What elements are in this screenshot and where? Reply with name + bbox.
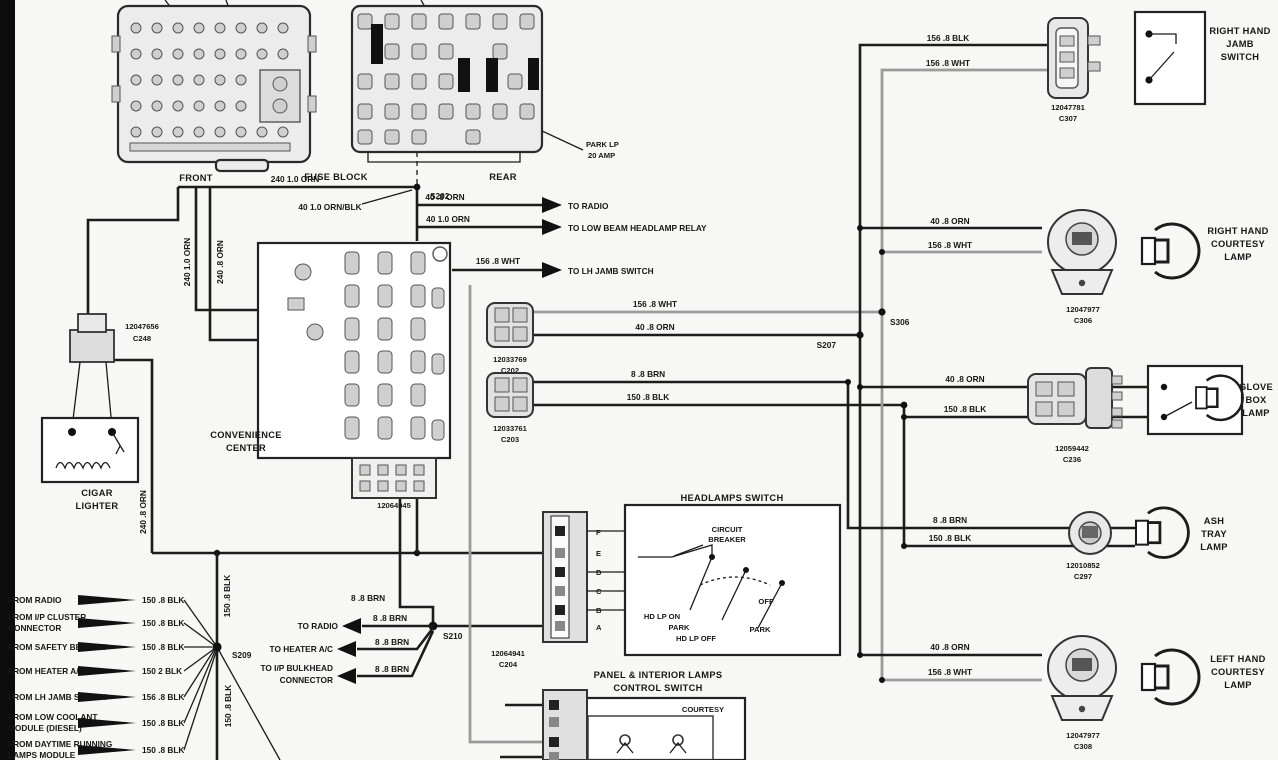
- ash-tray-lamp: 12010852 C297 ASH TRAY LAMP: [1066, 508, 1228, 581]
- wire-label: 240 1.0 ORN: [271, 174, 319, 184]
- ground-splice-area: S209 FROM RADIO 150 .8 BLK FROM I/P CLUS…: [8, 595, 280, 760]
- wire-label: 156 .8 WHT: [926, 58, 970, 68]
- from-row-wire: 150 .8 BLK: [142, 718, 184, 728]
- c297-id: C297: [1074, 572, 1092, 581]
- lamp-icon: [1142, 650, 1199, 704]
- ash-tray-label-1: ASH: [1204, 516, 1225, 526]
- off-label: OFF: [758, 597, 774, 606]
- rh-jamb-label-3: SWITCH: [1221, 52, 1259, 62]
- cigar-connector-number: 12047656: [125, 322, 159, 331]
- cigar-connector-id: C248: [133, 334, 151, 343]
- wire-label: 150 .8 BLK: [929, 533, 971, 543]
- glove-box-label-2: BOX: [1245, 395, 1267, 405]
- splice-label-s207: S207: [817, 340, 837, 350]
- feed-arrow-to-low-beam: TO LOW BEAM HEADLAMP RELAY: [568, 223, 707, 233]
- from-row-label: FROM HEATER A/C: [8, 666, 85, 676]
- pin-label-a: A: [596, 623, 602, 632]
- rh-jamb-switch: 12047781 C307 RIGHT HAND JAMB SWITCH: [1048, 12, 1271, 123]
- glove-box-lamp: 12059442 C236 GLOVE BOX LAMP: [1028, 366, 1273, 464]
- from-row-wire: 150 .8 BLK: [142, 595, 184, 605]
- wire-label: 8 .8 BRN: [351, 593, 385, 603]
- to-row-label: TO RADIO: [298, 621, 339, 631]
- lh-courtesy-lamp: 12047977 C308 LEFT HAND COURTESY LAMP: [1048, 636, 1266, 751]
- rh-courtesy-label-1: RIGHT HAND: [1207, 226, 1268, 236]
- from-row-wire: 150 .8 BLK: [142, 618, 184, 628]
- convenience-connector-number: 12064945: [377, 501, 412, 510]
- from-row-wire: 156 .8 BLK: [142, 692, 184, 702]
- ash-tray-label-3: LAMP: [1200, 542, 1228, 552]
- fuse-block-rear-view: FUSE BLOCK REAR PARK LP 20 AMP: [304, 6, 619, 182]
- courtesy-label: COURTESY: [682, 705, 724, 714]
- to-row-wire: 8 .8 BRN: [375, 664, 409, 674]
- splice-label-s306: S306: [890, 317, 910, 327]
- rh-courtesy-lamp: 12047977 C306 RIGHT HAND COURTESY LAMP: [1048, 210, 1269, 325]
- c308-number: 12047977: [1066, 731, 1100, 740]
- cigar-lighter: 12047656 C248 CIGAR LIGHTER: [42, 314, 159, 511]
- scanned-wiring-diagram: FRONT FUSE BLOCK REAR PARK LP 20 AMP: [0, 0, 1278, 760]
- c306-id: C306: [1074, 316, 1092, 325]
- hd-lp-off-label: HD LP OFF: [676, 634, 716, 643]
- wire-label: 150 .8 BLK: [627, 392, 669, 402]
- glove-box-label-3: LAMP: [1242, 408, 1270, 418]
- lh-courtesy-label-3: LAMP: [1224, 680, 1252, 690]
- wire-label: 150 .8 BLK: [944, 404, 986, 414]
- from-row-wire: 150 2 BLK: [142, 666, 182, 676]
- pin-label-f: F: [596, 528, 601, 537]
- wire-label: 40 .8 ORN: [930, 216, 969, 226]
- to-row-label: TO HEATER A/C: [270, 644, 333, 654]
- wire-label-vertical: 150 .8 BLK: [223, 685, 233, 727]
- rh-jamb-label-1: RIGHT HAND: [1209, 26, 1270, 36]
- panel-switch-title-1: PANEL & INTERIOR LAMPS: [594, 670, 723, 680]
- lamp-icon: [1136, 508, 1188, 558]
- c307-id: C307: [1059, 114, 1077, 123]
- park-fuse-label-2: 20 AMP: [588, 151, 615, 160]
- rh-courtesy-label-2: COURTESY: [1211, 239, 1266, 249]
- headlamps-switch: HEADLAMPS SWITCH F E D C B A 12064941 C2…: [491, 493, 840, 669]
- wire-label-vertical: 240 1.0 ORN: [182, 238, 192, 286]
- c203-number: 12033761: [493, 424, 528, 433]
- splice-label-s209: S209: [232, 650, 252, 660]
- c202-number: 12033769: [493, 355, 527, 364]
- from-row-label: CONNECTOR: [8, 623, 61, 633]
- splice-label-s210: S210: [443, 631, 463, 641]
- panel-interior-lamps-switch: PANEL & INTERIOR LAMPS CONTROL SWITCH CO…: [543, 670, 745, 760]
- rh-jamb-label-2: JAMB: [1226, 39, 1254, 49]
- wire-label: 156 .8 WHT: [928, 667, 972, 677]
- rh-courtesy-label-3: LAMP: [1224, 252, 1252, 262]
- park-label-2: PARK: [750, 625, 771, 634]
- c236-number: 12059442: [1055, 444, 1089, 453]
- wire-label: 40 .8 ORN: [930, 642, 969, 652]
- to-row-label: CONNECTOR: [280, 675, 333, 685]
- c204-id: C204: [499, 660, 518, 669]
- dimmer-splice-area: S210 TO RADIO 8 .8 BRN TO HEATER A/C 8 .…: [260, 613, 462, 685]
- hd-lp-on-label: HD LP ON: [644, 612, 680, 621]
- feed-arrow-to-lh-jamb: TO LH JAMB SWITCH: [568, 266, 654, 276]
- to-row-wire: 8 .8 BRN: [375, 637, 409, 647]
- c308-id: C308: [1074, 742, 1092, 751]
- connector-c202: 12033769 C202: [487, 303, 533, 375]
- from-row-wire: 150 .8 BLK: [142, 745, 184, 755]
- wire-label-vertical: 240 .8 ORN: [138, 490, 148, 534]
- wire-label: 40 .8 ORN: [635, 322, 674, 332]
- from-row-label: LAMPS MODULE: [8, 750, 76, 760]
- wire-label-vertical: 150 .8 BLK: [222, 575, 232, 617]
- wire-label: 156 .8 BLK: [927, 33, 969, 43]
- c306-number: 12047977: [1066, 305, 1100, 314]
- convenience-center-label-1: CONVENIENCE: [210, 430, 282, 440]
- c203-id: C203: [501, 435, 519, 444]
- wire-label: 156 .8 WHT: [928, 240, 972, 250]
- convenience-center: 12064945 CONVENIENCE CENTER: [210, 243, 450, 510]
- wire-label: 8 .8 BRN: [933, 515, 967, 525]
- from-row-label: FROM I/P CLUSTER: [8, 612, 86, 622]
- convenience-center-label-2: CENTER: [226, 443, 266, 453]
- circuit-breaker-label-2: BREAKER: [708, 535, 746, 544]
- to-row-wire: 8 .8 BRN: [373, 613, 407, 623]
- lh-courtesy-label-2: COURTESY: [1211, 667, 1266, 677]
- fuse-rear-label: REAR: [489, 172, 517, 182]
- wire-label: 40 1.0 ORN/BLK: [298, 202, 361, 212]
- fuse-front-label: FRONT: [179, 173, 213, 183]
- lh-courtesy-label-1: LEFT HAND: [1210, 654, 1265, 664]
- fuse-block-front-view: FRONT: [112, 6, 316, 183]
- glove-box-label-1: GLOVE: [1239, 382, 1273, 392]
- c204-number: 12064941: [491, 649, 526, 658]
- from-row-label: FROM RADIO: [8, 595, 62, 605]
- circuit-breaker-label-1: CIRCUIT: [712, 525, 743, 534]
- park-label: PARK: [669, 623, 690, 632]
- wire-label: 156 .8 WHT: [633, 299, 677, 309]
- lamp-icon: [1142, 224, 1199, 278]
- to-row-label: TO I/P BULKHEAD: [260, 663, 333, 673]
- pin-label-e: E: [596, 549, 601, 558]
- wire-label: 8 .8 BRN: [631, 369, 665, 379]
- c307-number: 12047781: [1051, 103, 1086, 112]
- from-row-label: MODULE (DIESEL): [8, 723, 82, 733]
- wire-label: 40 1.0 ORN: [426, 214, 470, 224]
- wire-label-vertical: 240 .8 ORN: [215, 240, 225, 284]
- from-row-wire: 150 .8 BLK: [142, 642, 184, 652]
- wiring-diagram-canvas: FRONT FUSE BLOCK REAR PARK LP 20 AMP: [0, 0, 1278, 760]
- cigar-lighter-label-2: LIGHTER: [76, 501, 119, 511]
- park-fuse-label-1: PARK LP: [586, 140, 619, 149]
- wire-label: 40 .8 ORN: [425, 192, 464, 202]
- headlamps-switch-title: HEADLAMPS SWITCH: [681, 493, 784, 503]
- c236-id: C236: [1063, 455, 1081, 464]
- wire-label: 156 .8 WHT: [476, 256, 520, 266]
- c297-number: 12010852: [1066, 561, 1100, 570]
- ash-tray-label-2: TRAY: [1201, 529, 1227, 539]
- wire-label: 40 .8 ORN: [945, 374, 984, 384]
- feed-arrow-to-radio: TO RADIO: [568, 201, 609, 211]
- panel-switch-title-2: CONTROL SWITCH: [613, 683, 702, 693]
- cigar-lighter-label-1: CIGAR: [81, 488, 112, 498]
- connector-c203: 12033761 C203: [487, 373, 533, 444]
